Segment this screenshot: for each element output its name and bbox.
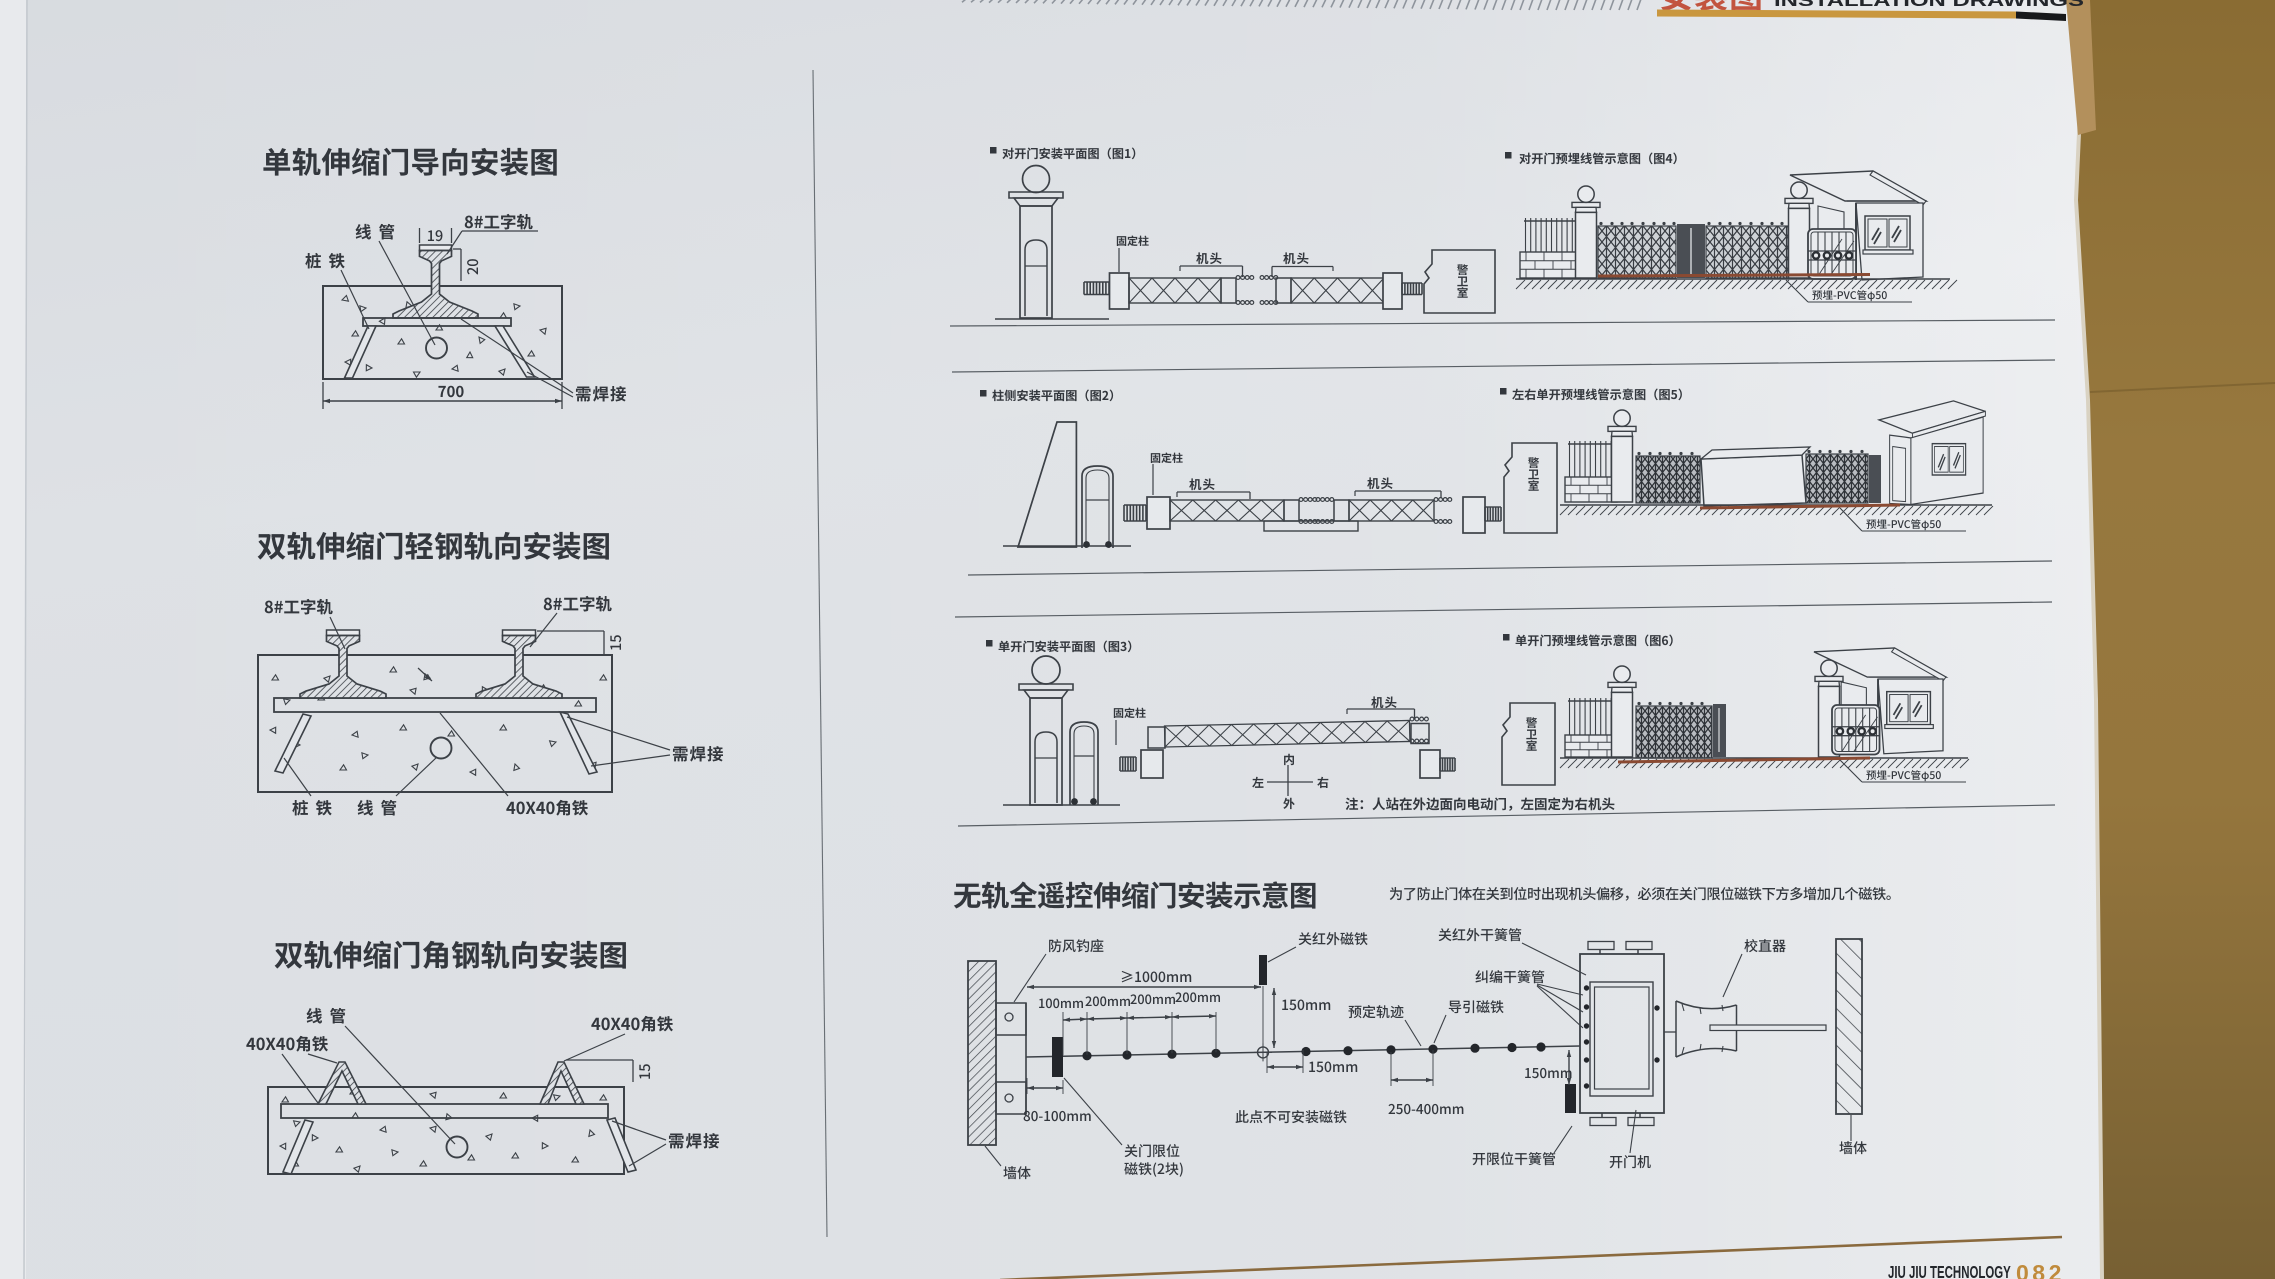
svg-text:JIU JIU TECHNOLOGY: JIU JIU TECHNOLOGY	[1888, 1264, 2011, 1279]
svg-text:082: 082	[2016, 1260, 2065, 1279]
svg-text:INSTALLATION DRAWINGS: INSTALLATION DRAWINGS	[1774, 0, 2084, 10]
